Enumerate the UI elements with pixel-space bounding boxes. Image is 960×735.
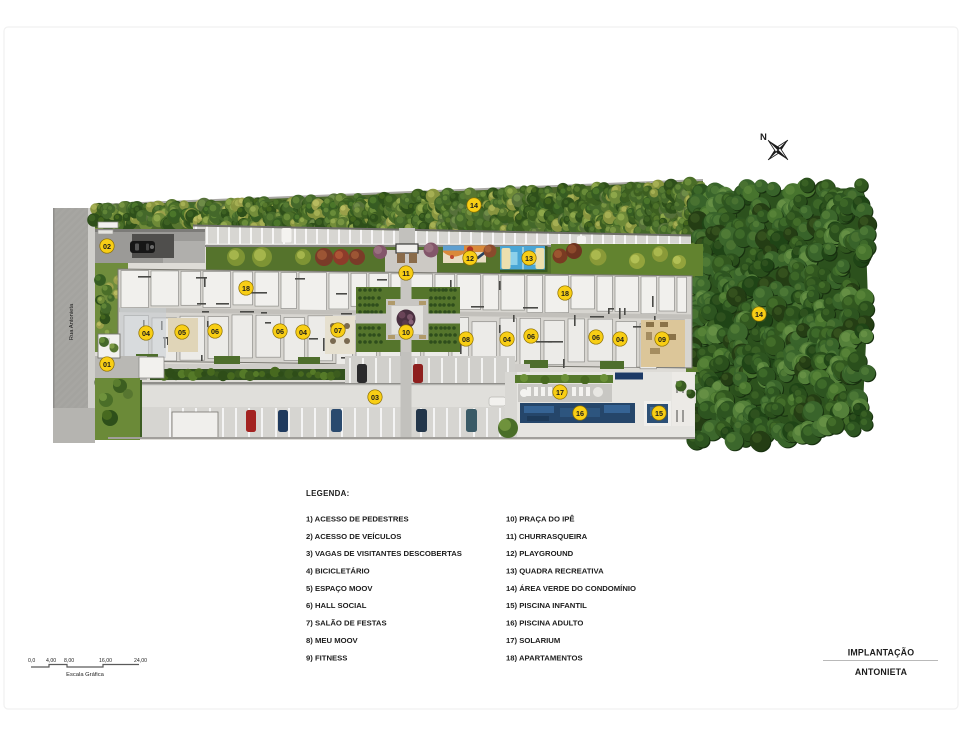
svg-text:16) PISCINA ADULTO: 16) PISCINA ADULTO	[506, 619, 583, 628]
svg-text:2) ACESSO DE VEÍCULOS: 2) ACESSO DE VEÍCULOS	[306, 532, 401, 541]
svg-text:04: 04	[503, 335, 511, 344]
svg-text:9) FITNESS: 9) FITNESS	[306, 653, 347, 662]
svg-text:LEGENDA:: LEGENDA:	[306, 489, 350, 498]
svg-text:0,0: 0,0	[28, 658, 35, 664]
svg-text:8,00: 8,00	[64, 658, 74, 664]
svg-text:5) ESPAÇO MOOV: 5) ESPAÇO MOOV	[306, 584, 373, 593]
svg-text:Escala Gráfica: Escala Gráfica	[66, 672, 104, 678]
svg-text:6) HALL SOCIAL: 6) HALL SOCIAL	[306, 601, 367, 610]
svg-text:18) APARTAMENTOS: 18) APARTAMENTOS	[506, 653, 583, 662]
svg-text:06: 06	[527, 332, 535, 341]
svg-text:17) SOLARIUM: 17) SOLARIUM	[506, 636, 560, 645]
svg-text:7) SALÃO DE FESTAS: 7) SALÃO DE FESTAS	[306, 619, 387, 628]
svg-text:13: 13	[525, 254, 533, 263]
svg-text:IMPLANTAÇÃO: IMPLANTAÇÃO	[848, 648, 915, 658]
svg-text:06: 06	[211, 327, 219, 336]
svg-text:14: 14	[470, 201, 478, 210]
svg-text:14) ÁREA VERDE DO CONDOMÍNIO: 14) ÁREA VERDE DO CONDOMÍNIO	[506, 584, 636, 593]
svg-text:11: 11	[402, 269, 410, 278]
svg-text:04: 04	[616, 335, 624, 344]
svg-text:3) VAGAS DE VISITANTES DESCOBE: 3) VAGAS DE VISITANTES DESCOBERTAS	[306, 549, 462, 558]
svg-text:11) CHURRASQUEIRA: 11) CHURRASQUEIRA	[506, 532, 588, 541]
svg-text:12) PLAYGROUND: 12) PLAYGROUND	[506, 549, 574, 558]
svg-text:03: 03	[371, 393, 379, 402]
svg-text:02: 02	[103, 242, 111, 251]
svg-text:05: 05	[178, 328, 186, 337]
svg-text:18: 18	[561, 289, 569, 298]
svg-text:06: 06	[276, 327, 284, 336]
svg-text:4) BICICLETÁRIO: 4) BICICLETÁRIO	[306, 567, 370, 576]
svg-text:4,00: 4,00	[46, 658, 56, 664]
svg-text:09: 09	[658, 335, 666, 344]
svg-text:16,00: 16,00	[99, 658, 112, 664]
svg-text:16: 16	[576, 409, 584, 418]
svg-text:8) MEU MOOV: 8) MEU MOOV	[306, 636, 359, 645]
svg-text:18: 18	[242, 284, 250, 293]
svg-text:13) QUADRA RECREATIVA: 13) QUADRA RECREATIVA	[506, 567, 604, 576]
svg-text:15) PISCINA INFANTIL: 15) PISCINA INFANTIL	[506, 601, 587, 610]
svg-text:10) PRAÇA DO IPÊ: 10) PRAÇA DO IPÊ	[506, 515, 575, 524]
svg-text:N: N	[760, 132, 767, 143]
svg-text:07: 07	[334, 326, 342, 335]
svg-text:06: 06	[592, 333, 600, 342]
svg-text:Rua Antonieta: Rua Antonieta	[69, 303, 75, 340]
svg-text:01: 01	[103, 360, 111, 369]
svg-text:08: 08	[462, 335, 470, 344]
svg-text:10: 10	[402, 328, 410, 337]
svg-text:04: 04	[299, 328, 307, 337]
svg-text:24,00: 24,00	[134, 658, 147, 664]
svg-text:17: 17	[556, 388, 564, 397]
svg-text:ANTONIETA: ANTONIETA	[855, 667, 908, 677]
svg-text:12: 12	[466, 254, 474, 263]
svg-text:15: 15	[655, 409, 663, 418]
svg-text:04: 04	[142, 329, 150, 338]
svg-text:1) ACESSO DE PEDESTRES: 1) ACESSO DE PEDESTRES	[306, 515, 409, 524]
svg-text:14: 14	[755, 310, 763, 319]
